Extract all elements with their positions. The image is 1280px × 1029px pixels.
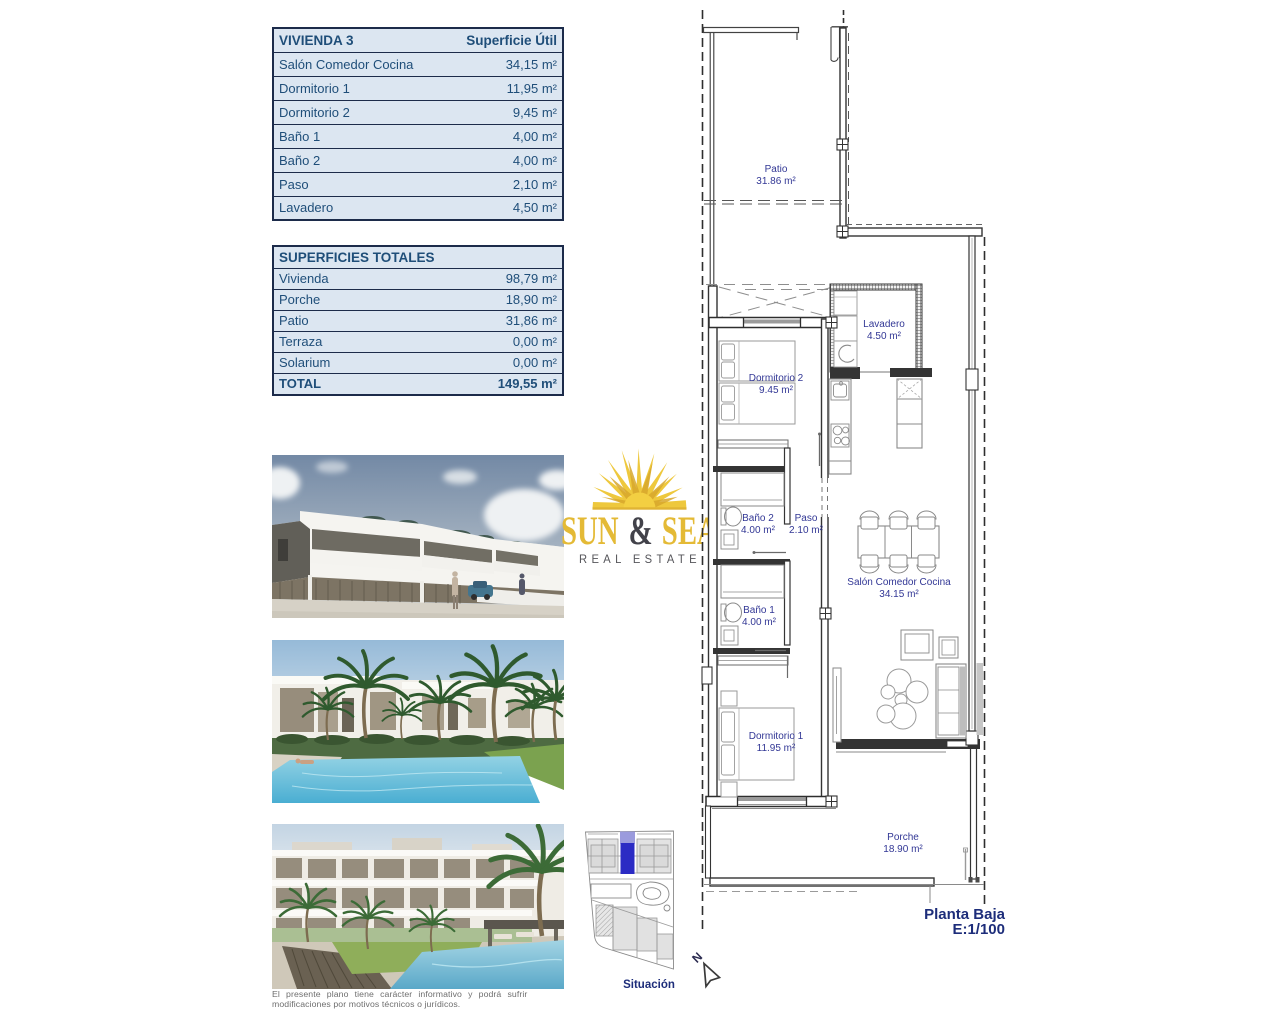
svg-text:SUN: SUN xyxy=(561,508,619,553)
svg-text:REAL ESTATE: REAL ESTATE xyxy=(579,554,701,566)
svg-text:4.00 m²: 4.00 m² xyxy=(741,525,776,536)
svg-text:9.45 m²: 9.45 m² xyxy=(759,385,794,396)
svg-text:31.86 m²: 31.86 m² xyxy=(756,176,796,187)
svg-text:Patio: Patio xyxy=(765,164,788,175)
svg-text:Dormitorio 2: Dormitorio 2 xyxy=(749,373,804,384)
svg-text:Situación: Situación xyxy=(623,979,675,991)
svg-text:Salón Comedor Cocina: Salón Comedor Cocina xyxy=(847,577,951,588)
svg-text:&: & xyxy=(629,508,653,553)
svg-text:18.90 m²: 18.90 m² xyxy=(883,844,923,855)
svg-text:2.10 m²: 2.10 m² xyxy=(789,525,824,536)
svg-text:Baño 2: Baño 2 xyxy=(742,513,774,524)
svg-text:E:1/100: E:1/100 xyxy=(952,921,1005,938)
svg-text:Porche: Porche xyxy=(887,832,919,843)
svg-text:34.15 m²: 34.15 m² xyxy=(879,589,919,600)
svg-text:Lavadero: Lavadero xyxy=(863,319,905,330)
svg-text:Baño 1: Baño 1 xyxy=(743,605,775,616)
svg-text:Dormitorio 1: Dormitorio 1 xyxy=(749,731,804,742)
svg-text:N: N xyxy=(689,950,705,966)
svg-text:4.50 m²: 4.50 m² xyxy=(867,331,902,342)
svg-text:4.00 m²: 4.00 m² xyxy=(742,617,777,628)
svg-text:Paso: Paso xyxy=(795,513,818,524)
svg-text:11.95 m²: 11.95 m² xyxy=(757,743,796,754)
